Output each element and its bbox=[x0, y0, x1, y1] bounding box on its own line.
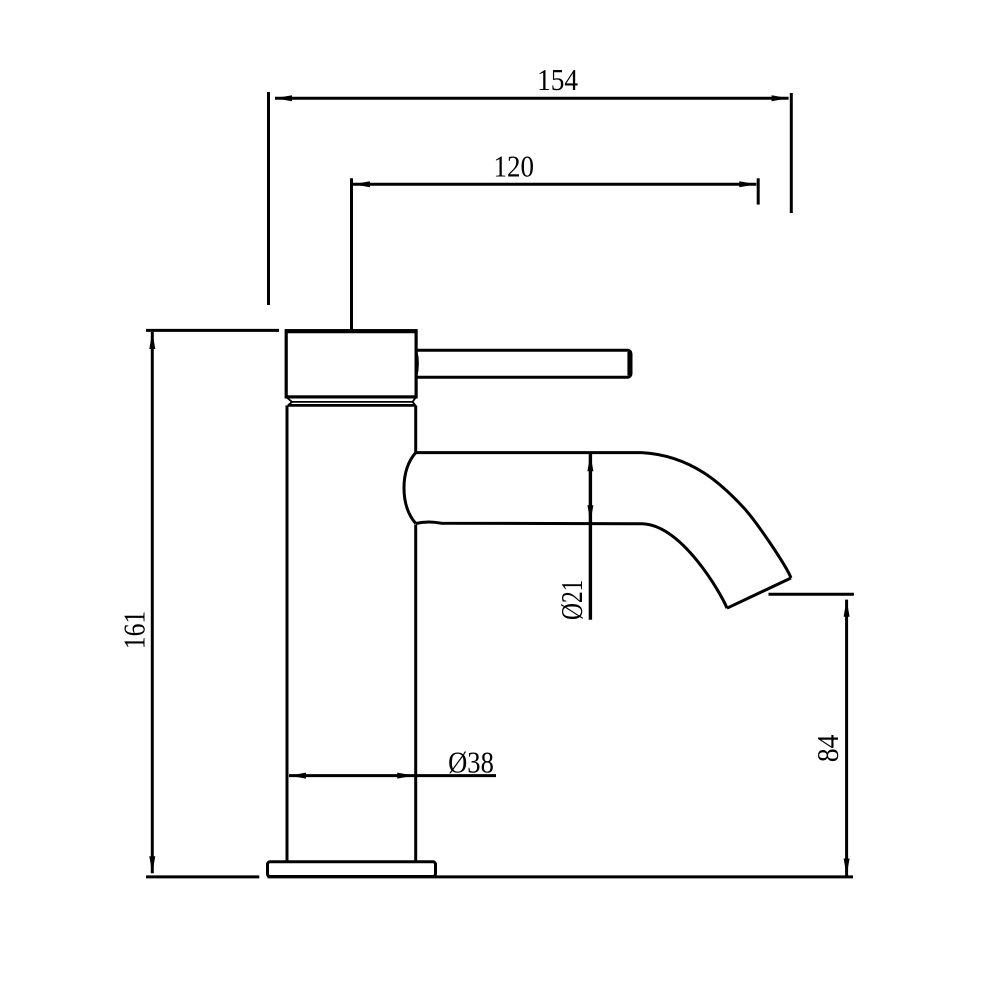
svg-text:161: 161 bbox=[117, 611, 152, 650]
svg-text:Ø38: Ø38 bbox=[448, 745, 494, 780]
svg-text:120: 120 bbox=[493, 149, 534, 184]
svg-text:Ø21: Ø21 bbox=[554, 580, 589, 620]
svg-text:154: 154 bbox=[537, 62, 578, 97]
svg-text:84: 84 bbox=[810, 734, 845, 762]
